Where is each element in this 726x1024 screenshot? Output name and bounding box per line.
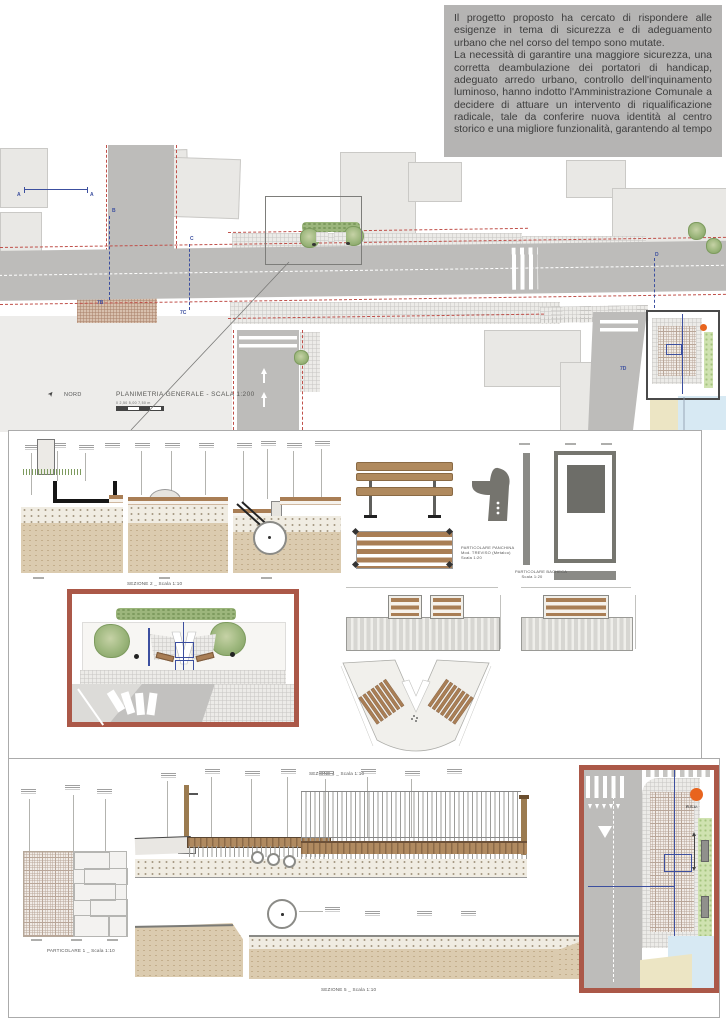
- section-marker-label: A: [17, 192, 21, 198]
- tree: [210, 622, 246, 656]
- crosswalk: [600, 320, 638, 332]
- bench-foot: [364, 515, 377, 518]
- leader-line: [211, 777, 212, 837]
- red-dashed-edge: [106, 145, 107, 251]
- section-marker-box: [175, 642, 194, 658]
- fountain-silhouette: [464, 465, 514, 523]
- fence-bottom-rail: [301, 837, 521, 838]
- microtext-label: [447, 769, 462, 775]
- leader-line: [167, 781, 168, 837]
- bacheca-label-2: Scala 1:20: [515, 574, 549, 579]
- section-marker-label: C: [190, 236, 194, 242]
- microtext-label: [79, 445, 94, 451]
- wood-slats: [433, 598, 461, 616]
- red-dashed-edge: [302, 330, 303, 430]
- microtext-label: [461, 911, 476, 917]
- microtext-label: [205, 769, 220, 775]
- microtext-label: [21, 789, 36, 795]
- leader-line: [287, 777, 288, 837]
- bench-label-3: Scala 1:20: [461, 555, 514, 560]
- leader-line: [293, 451, 294, 497]
- leader-line: [251, 779, 252, 837]
- intro-paragraph-1: Il progetto proposto ha cercato di rispo…: [454, 12, 712, 49]
- section-line-blue: [654, 258, 655, 308]
- sezione4-caption: SEZIONE 4 _ Scala 1:10: [309, 771, 364, 776]
- sezione5-caption: SEZIONE 5 _ Scala 1:10: [321, 987, 376, 992]
- microtext-label: [65, 785, 80, 791]
- road-arrow-stem: [263, 398, 265, 407]
- planter-wood-box: [388, 595, 422, 619]
- microtext-label: [105, 443, 120, 449]
- detail-callout-rect-2: [646, 310, 720, 400]
- leader-line: [29, 799, 30, 851]
- microtext-label: [361, 769, 376, 775]
- project-board: Il progetto proposto ha cercato di rispo…: [0, 0, 726, 1024]
- gravel-layer: [233, 516, 341, 532]
- planter-base-wall: [346, 617, 500, 651]
- section-marker-label: A: [90, 192, 94, 198]
- planter-base-wall: [521, 617, 633, 651]
- yield-mark: [609, 804, 613, 809]
- section-marker-label: 7B: [97, 300, 103, 306]
- details-panel-middle: SEZIONE 2 _ Scala 1:10 PARTICOLARE PANCH…: [8, 430, 702, 759]
- intro-paragraph-2: La necessità di garantire una maggiore s…: [454, 49, 712, 136]
- section-marker-label: D: [655, 252, 659, 258]
- brick-paving: [77, 297, 157, 323]
- section-line-blue: [189, 244, 190, 310]
- soil-mass: [135, 923, 243, 977]
- bench-foot: [428, 515, 441, 518]
- pipe-circle: [267, 853, 280, 866]
- microtext-label: [287, 443, 302, 449]
- microtext-label: [159, 577, 170, 579]
- litter-bin: [134, 654, 139, 659]
- side-road-north: [108, 145, 174, 255]
- cobble-band: [80, 670, 286, 684]
- particolare1-caption: PARTICOLARE 1 _ Scala 1:10: [47, 948, 115, 953]
- stone-slabs-detail: [73, 851, 127, 937]
- road-arrow-stem: [263, 374, 265, 383]
- microtext-label: [33, 577, 44, 579]
- bench-seat-slat: [356, 487, 453, 496]
- bracket-tick: [24, 187, 25, 193]
- soil-mass: [21, 523, 123, 573]
- fence-top-rail: [301, 791, 521, 792]
- wood-deck: [301, 843, 527, 854]
- bench-plan-view: [356, 531, 453, 569]
- microtext-label: [97, 789, 112, 795]
- leader-line: [73, 795, 74, 851]
- pipe-center-dot: [281, 913, 284, 916]
- details-panel-bottom: SEZIONE 4 _ Scala 1:10 PARTICOLARE 1 _ S…: [8, 758, 720, 1018]
- tree: [94, 624, 130, 658]
- tree: [706, 238, 722, 254]
- gravel-layer: [135, 859, 527, 878]
- microtext-label: [135, 443, 150, 449]
- yield-mark: [588, 804, 592, 809]
- microtext-label: [161, 773, 176, 779]
- fountain-body: [472, 468, 510, 521]
- hedge: [116, 608, 236, 620]
- crosswalk: [586, 776, 628, 798]
- building: [0, 148, 48, 208]
- gravel-layer: [21, 507, 123, 523]
- bench: [701, 840, 709, 862]
- bench-leg: [369, 480, 372, 516]
- section-line-blue: [588, 886, 674, 887]
- microtext-label: [237, 443, 252, 449]
- microtext-label: [319, 771, 334, 777]
- arrow-head-down: [692, 867, 696, 871]
- tree: [294, 350, 309, 365]
- microtext-label: [281, 769, 296, 775]
- microtext-label: [565, 443, 576, 445]
- dimension-line: [346, 587, 498, 588]
- leader-line: [171, 451, 172, 495]
- pipe-circle: [283, 855, 296, 868]
- bench-back-slat: [356, 473, 453, 481]
- yield-mark: [602, 804, 606, 809]
- paving-grid-detail: [23, 851, 75, 937]
- pipe-circle: [251, 851, 264, 864]
- sections-caption: SEZIONE 2 _ Scala 1:10: [127, 581, 182, 586]
- pavement-layer: [128, 497, 228, 505]
- microtext-label: [71, 939, 82, 941]
- dimension-line: [521, 587, 631, 588]
- v-bench-plan: [339, 658, 493, 756]
- section-marker-bracket: [24, 189, 88, 196]
- section-marker-label: 7D: [620, 366, 626, 372]
- microtext-label: [199, 443, 214, 449]
- bacheca-side-bar: [523, 453, 530, 565]
- leader-line: [321, 449, 322, 497]
- tree: [688, 222, 706, 240]
- site-plan: A A B 7B C 7C D 7D ➤ NORD PLANIMETRIA GE…: [0, 140, 726, 432]
- microtext-label: [601, 443, 612, 445]
- pavement-layer: [109, 495, 123, 503]
- microtext-label: [107, 939, 118, 941]
- microtext-label: [261, 577, 272, 579]
- gravel-layer: [128, 505, 228, 523]
- section-marker-box: [664, 854, 692, 872]
- yield-triangle: [598, 826, 612, 838]
- gravel-layer: [249, 937, 619, 949]
- red-dashed-edge: [176, 145, 177, 249]
- building: [408, 162, 462, 202]
- pole-cap: [519, 795, 529, 799]
- microtext-label: [325, 907, 340, 913]
- microtext-label: [31, 939, 42, 941]
- pipe-center-dot: [268, 536, 271, 539]
- pavement-layer: [280, 497, 341, 505]
- rsu-label: R.S.U.: [686, 804, 698, 809]
- stone-slab: [108, 915, 128, 937]
- sidewalk-paving: [202, 684, 294, 722]
- sand-area: [640, 954, 692, 988]
- planter-wood-box: [430, 595, 464, 619]
- bacheca-detail-label: PARTICOLARE BACHECA Scala 1:20: [515, 569, 549, 579]
- section-line-blue: [109, 216, 110, 300]
- intro-textbox: Il progetto proposto ha cercato di rispo…: [444, 5, 722, 157]
- sidewalk-banding: [642, 770, 714, 777]
- microtext-label: [365, 911, 380, 917]
- building-block: [0, 316, 232, 432]
- leader-line: [205, 451, 206, 495]
- north-label: NORD: [64, 392, 82, 398]
- dimension-line: [635, 595, 636, 649]
- yield-mark: [595, 804, 599, 809]
- dimension-line: [500, 595, 501, 649]
- crosswalk: [239, 336, 297, 350]
- plan-title: PLANIMETRIA GENERALE - SCALA 1:200: [116, 391, 255, 398]
- bench-back-slat: [356, 462, 453, 471]
- wood-slats: [391, 598, 419, 616]
- litter-bin: [230, 652, 235, 657]
- arrow-head-up: [692, 832, 696, 836]
- railing-fence: [301, 791, 521, 841]
- scale-text: 0 2,50 5,00 7,50 m: [116, 401, 151, 405]
- red-dashed-edge: [233, 330, 234, 430]
- grass-section: [23, 469, 83, 475]
- corner-detail-inset: R.S.U.: [579, 765, 719, 993]
- microtext-label: [519, 443, 530, 445]
- detail-callout-rect-1: [265, 196, 362, 265]
- scale-bar: [116, 406, 164, 411]
- leader-line: [299, 911, 323, 912]
- microtext-label: [261, 441, 276, 447]
- section-marker-label: 7C: [180, 310, 186, 316]
- rsu-marker-dot: [690, 788, 703, 801]
- ramp-deck: [135, 836, 192, 855]
- crosswalk: [512, 247, 539, 289]
- microtext-label: [405, 771, 420, 777]
- leader-line: [243, 451, 244, 503]
- pole-bracket: [189, 793, 198, 795]
- bracket-tick: [87, 187, 88, 193]
- microtext-label: [417, 911, 432, 917]
- bench: [701, 896, 709, 918]
- bacheca-panel: [567, 465, 605, 513]
- dimension-arrow: [694, 834, 695, 868]
- green-strip: [698, 818, 712, 948]
- leader-line: [105, 799, 106, 851]
- soil-mass: [233, 532, 341, 573]
- planter-wood-box: [543, 595, 609, 619]
- stone-slab: [74, 915, 110, 937]
- microtext-label: [245, 771, 260, 777]
- drainage-channel: [53, 481, 117, 503]
- sidewalk-paving: [230, 302, 560, 324]
- soil-mass: [128, 523, 228, 573]
- section-line-blue: [148, 628, 150, 666]
- yield-mark: [616, 804, 620, 809]
- leader-line: [141, 451, 142, 495]
- road-center-line: [613, 796, 614, 982]
- bench-leg: [433, 480, 436, 516]
- section-marker-label: B: [112, 208, 116, 214]
- building: [167, 157, 241, 219]
- bench-detail-label: PARTICOLARE PANCHINA Mod. TREVISO (Metal…: [461, 545, 514, 561]
- plaza-detail-inset: [67, 589, 299, 727]
- microtext-label: [315, 441, 330, 447]
- wood-slats: [546, 598, 606, 616]
- microtext-label: [165, 443, 180, 449]
- leader-line: [267, 449, 268, 499]
- water-strip: [678, 396, 726, 430]
